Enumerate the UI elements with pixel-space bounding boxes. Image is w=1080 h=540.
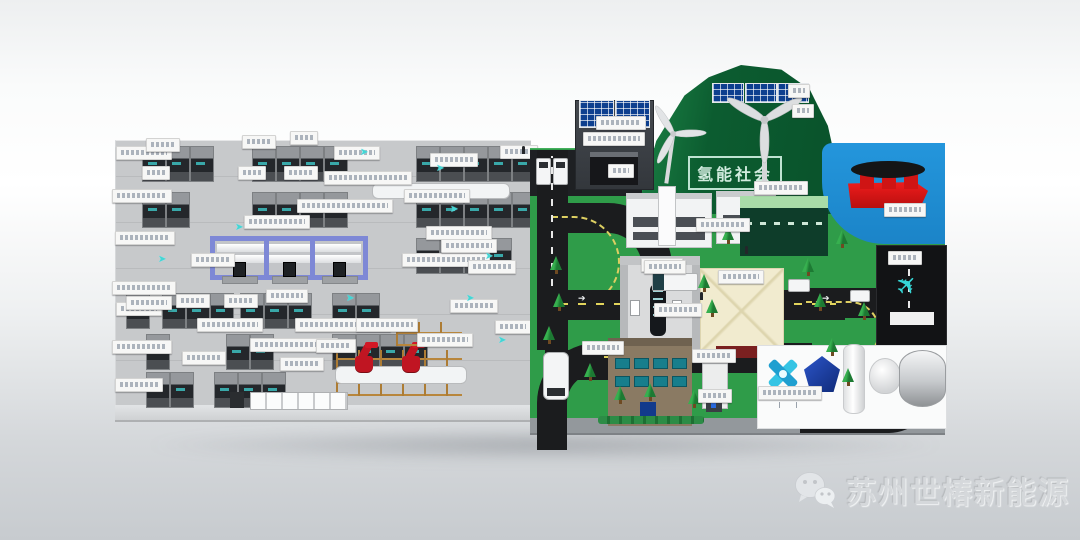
tree (858, 302, 870, 320)
machine-block (190, 146, 214, 182)
tree (644, 383, 656, 401)
park-sign-label (696, 218, 750, 232)
dark-crate (230, 392, 244, 408)
equipment-label (297, 199, 393, 213)
scene-3d-factory-model: ➤➤➤➤➤➤➤➤➤ ➔➔➔➔➔➔ 氢能社会 (0, 0, 1080, 540)
park-sign-label (582, 341, 624, 355)
tree (584, 363, 596, 381)
tree (550, 256, 562, 274)
park-sign-label (888, 251, 922, 265)
park-sign-label (596, 116, 646, 130)
equipment-label (244, 215, 310, 229)
bus-windshield (547, 388, 565, 396)
park-sign-label (608, 164, 634, 178)
parked-truck (553, 158, 568, 185)
workstation-monitor (283, 262, 296, 277)
white-car (850, 290, 870, 302)
equipment-label (266, 289, 308, 303)
workstation-monitor (333, 262, 346, 277)
equipment-label (146, 138, 180, 152)
equipment-label (334, 146, 380, 160)
equipment-label (142, 166, 170, 180)
tree (543, 326, 555, 344)
equipment-label (284, 166, 318, 180)
flow-arrow-icon: ➤ (450, 205, 458, 215)
dome-exhibit (869, 358, 901, 394)
equipment-label (224, 294, 258, 308)
flow-arrow-icon: ➤ (360, 148, 368, 158)
tree (836, 230, 848, 248)
equipment-label (182, 351, 226, 365)
warehouse-tower (658, 186, 676, 246)
park-sign-label (718, 270, 764, 284)
equipment-label (426, 226, 492, 240)
park-sign-label (788, 84, 810, 98)
park-sign-label (754, 181, 808, 195)
tree (842, 368, 854, 386)
delivery-truck (652, 273, 698, 291)
equipment-label (112, 340, 172, 354)
ship-deck-saucer (851, 161, 925, 178)
parts-box-row (250, 392, 348, 410)
gantry-shelf (217, 244, 361, 252)
equipment-label (191, 253, 235, 267)
flow-arrow-icon: ➤ (158, 255, 166, 265)
equipment-label (197, 318, 263, 332)
gantry-post (264, 241, 269, 275)
building-sign (583, 132, 645, 146)
wechat-icon (792, 469, 838, 511)
green-roof-building (740, 196, 828, 256)
flow-arrow-icon: ➤ (466, 294, 474, 304)
dimension-tick (796, 402, 797, 408)
equipment-label (316, 339, 356, 353)
equipment-label (176, 294, 210, 308)
shuttle-bus (543, 352, 569, 400)
tree (614, 386, 626, 404)
park-sign-label (792, 104, 814, 118)
red-robot-arm (402, 356, 420, 372)
truck-cab (653, 274, 664, 290)
park-sign-label (698, 389, 732, 403)
equipment-label (468, 260, 516, 274)
flow-arrow-icon: ➤ (498, 336, 506, 346)
runway-threshold (890, 312, 934, 325)
park-sign-label (654, 303, 702, 317)
tree (706, 299, 718, 317)
tree (553, 293, 565, 311)
equipment-label (112, 189, 172, 203)
equipment-label (404, 189, 470, 203)
watermark: 苏州世椿新能源 (792, 468, 1070, 512)
flow-arrow-icon: ➤ (346, 294, 354, 304)
park-sign-label (884, 203, 926, 217)
machine-block (226, 334, 250, 370)
workstation-desk (322, 276, 358, 284)
equipment-label (290, 131, 318, 145)
equipment-label (417, 333, 473, 347)
equipment-label (324, 171, 412, 185)
equipment-label (115, 378, 163, 392)
fuel-dispenser (630, 300, 640, 316)
park-sign-label (758, 386, 822, 400)
storage-tank-exhibit (899, 350, 946, 407)
dimension-tick (779, 402, 780, 408)
equipment-label (495, 320, 531, 334)
hedge-row (598, 416, 704, 424)
flow-arrow-icon: ➤ (436, 164, 444, 174)
equipment-label (280, 357, 324, 371)
workstation-desk (222, 276, 258, 284)
park-sign-label (644, 260, 686, 274)
warehouse-windows (675, 232, 705, 240)
watermark-text: 苏州世椿新能源 (846, 468, 1070, 512)
gantry-post (310, 241, 315, 275)
person-figure (700, 292, 703, 300)
flow-arrow-icon: ➤ (485, 252, 493, 262)
flow-arrow-icon: ➤ (235, 223, 243, 233)
workstation-desk (272, 276, 308, 284)
white-car (788, 279, 810, 292)
road-direction-arrow: ➔ (578, 294, 586, 303)
equipment-label (112, 281, 176, 295)
equipment-label (126, 296, 172, 310)
parked-truck (536, 158, 551, 185)
red-robot-arm (355, 356, 373, 372)
tree (826, 338, 838, 356)
equipment-label (238, 166, 266, 180)
tree (814, 293, 826, 311)
person-figure (522, 146, 525, 154)
tree (698, 274, 710, 292)
machine-block (170, 372, 194, 408)
equipment-label (242, 135, 276, 149)
tree (802, 258, 814, 276)
person-figure (745, 246, 748, 254)
equipment-label (115, 231, 175, 245)
equipment-label (356, 318, 418, 332)
park-sign-label (692, 349, 736, 363)
